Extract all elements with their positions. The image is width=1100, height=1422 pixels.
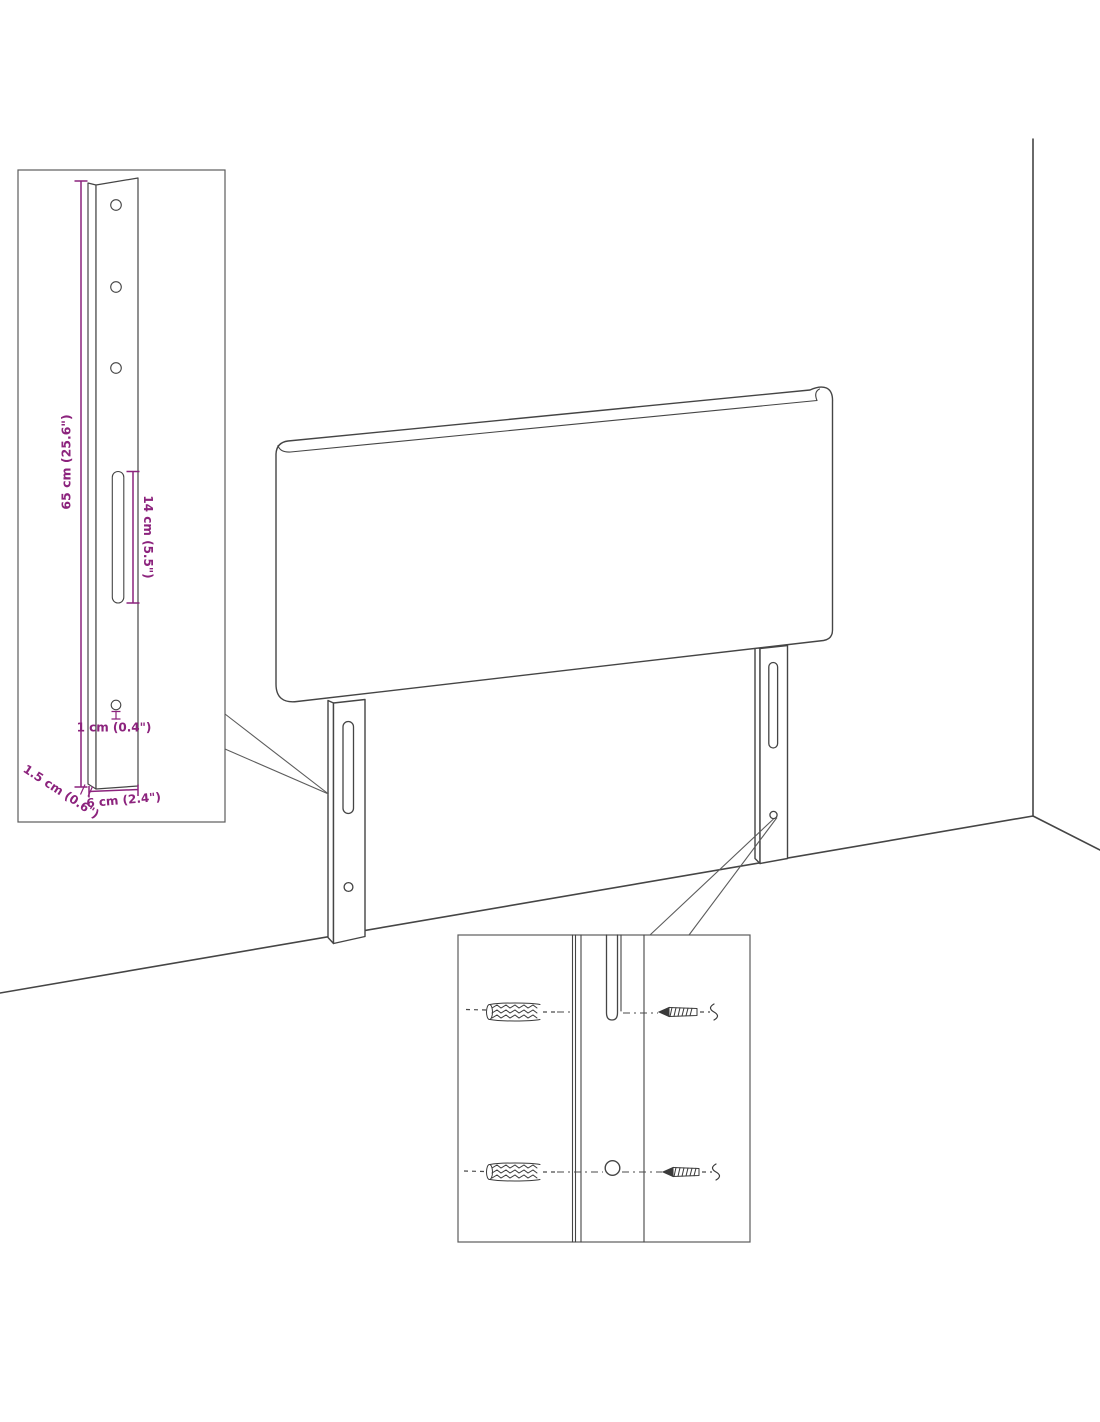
- leader-line: [225, 714, 329, 794]
- dimension-label-height: 65 cm (25.6"): [59, 414, 74, 509]
- dash-lead: [464, 1171, 484, 1172]
- dimension-label-slot: 14 cm (5.5"): [141, 495, 155, 578]
- leader-line: [650, 819, 774, 935]
- assembly-diagram: 65 cm (25.6") 14 cm (5.5") 1 cm (0.4") 6…: [0, 0, 1100, 1422]
- leader-line: [689, 818, 777, 936]
- headboard-panel: [276, 387, 833, 702]
- bracket-side-face: [88, 183, 96, 789]
- bracket-front-face: [96, 178, 138, 789]
- leader-line: [225, 749, 329, 794]
- leg-left-side-face: [328, 701, 334, 944]
- dimension-label-hole: 1 cm (0.4"): [77, 721, 152, 735]
- headboard-leg-right: [755, 646, 788, 864]
- panel-outline: [276, 387, 833, 702]
- diagram-canvas: 65 cm (25.6") 14 cm (5.5") 1 cm (0.4") 6…: [0, 0, 1100, 1422]
- inset-mounting-detail: [458, 935, 750, 1242]
- headboard-leg-left: [328, 700, 365, 944]
- leg-left-front-face: [334, 700, 366, 944]
- inset-mounting-box: [458, 935, 750, 1242]
- leg-right-side-face: [755, 647, 760, 864]
- floor-line-right: [1033, 816, 1100, 850]
- dash-lead: [466, 1010, 486, 1011]
- leg-right-front-face: [760, 646, 788, 864]
- callout-leader-left: [225, 714, 329, 794]
- inset-bracket-detail: 65 cm (25.6") 14 cm (5.5") 1 cm (0.4") 6…: [18, 170, 225, 822]
